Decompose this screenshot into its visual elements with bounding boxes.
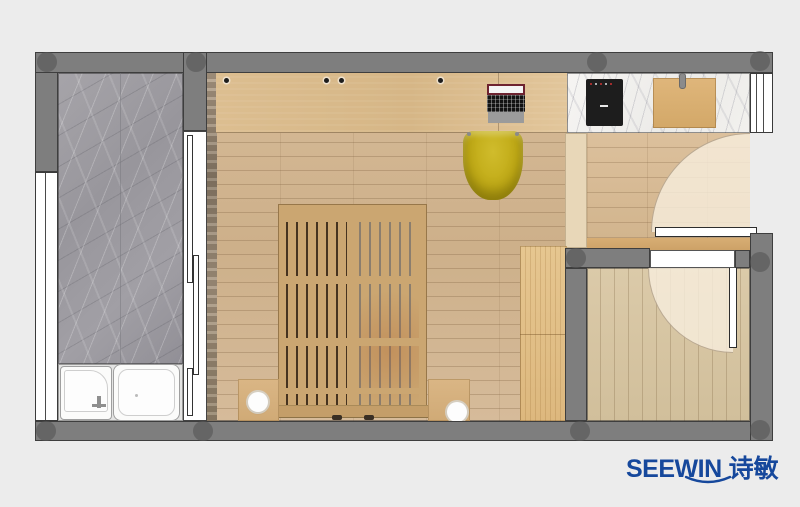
wall-bottom — [35, 421, 773, 441]
window-kitchen-mullion-1 — [756, 74, 757, 132]
slipper-left — [332, 415, 342, 420]
bed-slat-break-3 — [286, 388, 419, 394]
laptop-palmrest — [488, 112, 524, 123]
column-top-2 — [186, 52, 206, 72]
lamp-left — [248, 392, 268, 412]
bathtub-inner — [118, 369, 175, 416]
wardrobe-seam — [520, 334, 567, 335]
entry-threshold-strip — [565, 133, 587, 248]
column-right-mid — [750, 252, 770, 272]
logo-swoosh-icon — [684, 475, 732, 485]
bathtub-drain — [135, 394, 138, 397]
column-top-3 — [587, 52, 607, 72]
utility-door-opening — [650, 250, 735, 268]
laptop-screen — [487, 84, 525, 95]
cooktop — [586, 79, 623, 126]
seewin-logo: SEEWIN诗敏 — [626, 449, 796, 485]
desk-knob-2 — [324, 78, 329, 83]
bathroom-seam — [120, 73, 121, 364]
column-bottom-1 — [36, 421, 56, 441]
floor-plan: SEEWIN诗敏 — [0, 0, 800, 507]
column-bottom-3 — [570, 421, 590, 441]
cooktop-knob-5 — [610, 83, 612, 85]
wall-utility-hinge-block — [735, 250, 750, 268]
window-left — [35, 172, 58, 421]
faucet-stem — [97, 396, 101, 408]
column-top-1 — [37, 52, 57, 72]
desk-knob-1 — [224, 78, 229, 83]
wall-left-upper — [35, 72, 58, 172]
window-kitchen-mullion-2 — [763, 74, 764, 132]
wall-utility-left — [565, 268, 587, 421]
bed-slat-break-1 — [286, 276, 419, 284]
column-top-4 — [750, 51, 770, 71]
window-left-mullion — [45, 173, 46, 420]
cooktop-knob-1 — [590, 83, 592, 85]
chair-peg-left — [467, 132, 471, 136]
bath-sliding-panel-3 — [187, 368, 193, 416]
bed-footboard — [272, 405, 434, 418]
wall-top — [35, 52, 773, 73]
column-utility-corner — [566, 248, 586, 268]
logo-chinese-text: 诗敏 — [729, 455, 779, 483]
board-handle — [679, 73, 686, 89]
bed-slats-left — [286, 222, 347, 405]
lamp-right — [447, 402, 467, 422]
column-bottom-2 — [193, 421, 213, 441]
laptop-keyboard — [487, 95, 525, 112]
window-kitchen — [750, 73, 773, 133]
slipper-right — [364, 415, 374, 420]
column-bottom-4 — [750, 420, 770, 440]
utility-door-leaf — [729, 256, 737, 348]
cooktop-display — [600, 105, 608, 107]
desk-knob-4 — [438, 78, 443, 83]
chair-peg-right — [515, 132, 519, 136]
bath-sliding-panel-2 — [193, 255, 199, 375]
bed-center-rail — [347, 222, 359, 405]
bed-slats-right — [359, 222, 419, 405]
bed-slat-break-2 — [286, 338, 419, 346]
cooktop-knob-3 — [600, 83, 602, 85]
desk-knob-3 — [339, 78, 344, 83]
cooktop-knob-2 — [595, 83, 597, 85]
cooktop-knob-4 — [605, 83, 607, 85]
entry-door-leaf — [655, 227, 757, 237]
